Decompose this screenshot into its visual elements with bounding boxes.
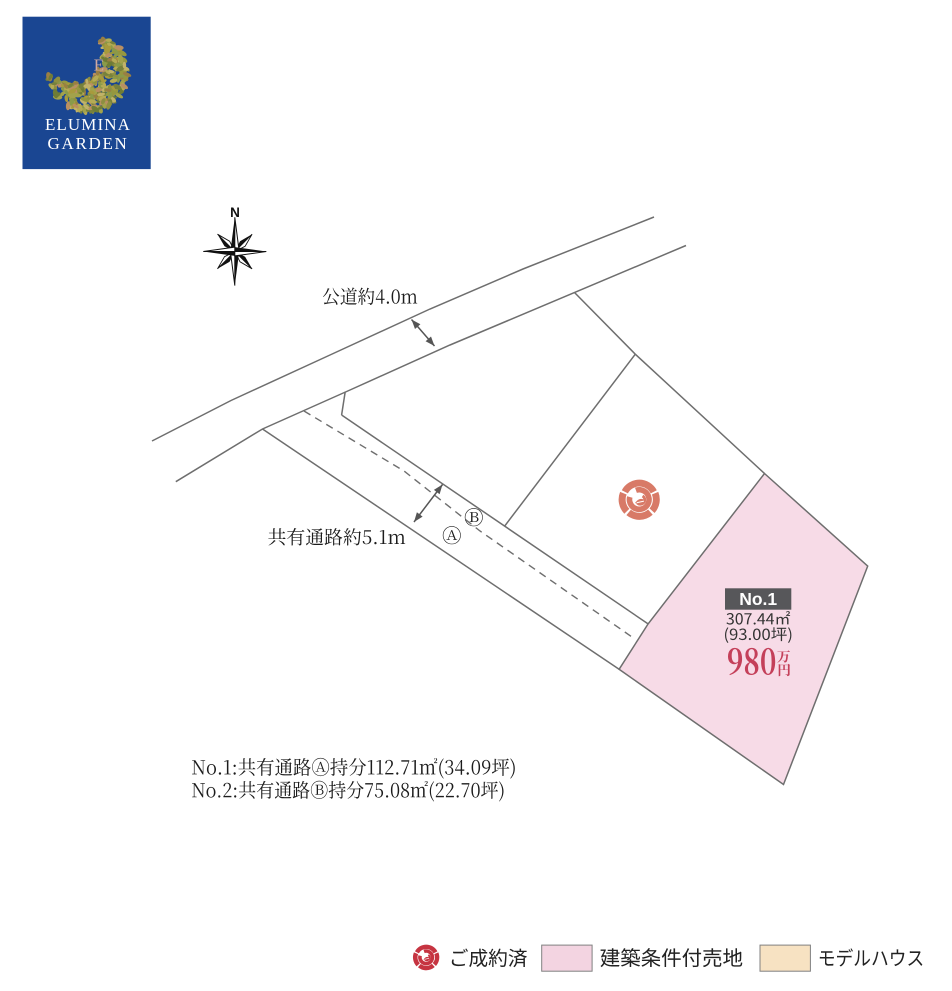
svg-text:No.1: No.1 [739, 589, 777, 609]
svg-text:ELUMINA: ELUMINA [45, 115, 131, 134]
svg-text:E: E [94, 56, 104, 75]
svg-text:GARDEN: GARDEN [47, 134, 128, 153]
